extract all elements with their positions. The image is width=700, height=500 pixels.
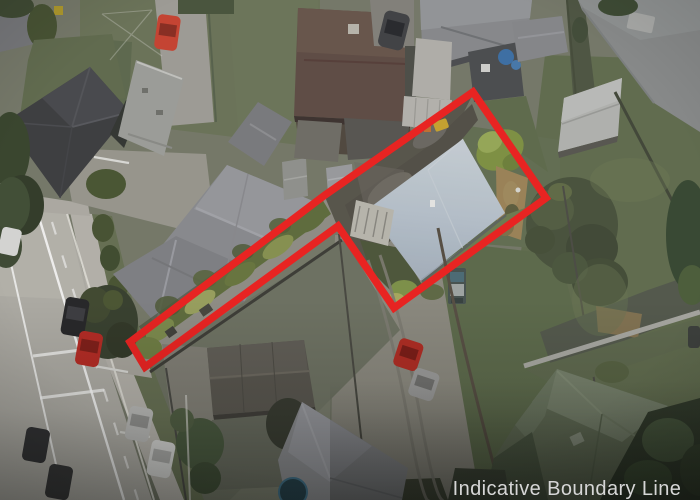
svg-text:Indicative Boundary Line: Indicative Boundary Line: [453, 478, 682, 500]
